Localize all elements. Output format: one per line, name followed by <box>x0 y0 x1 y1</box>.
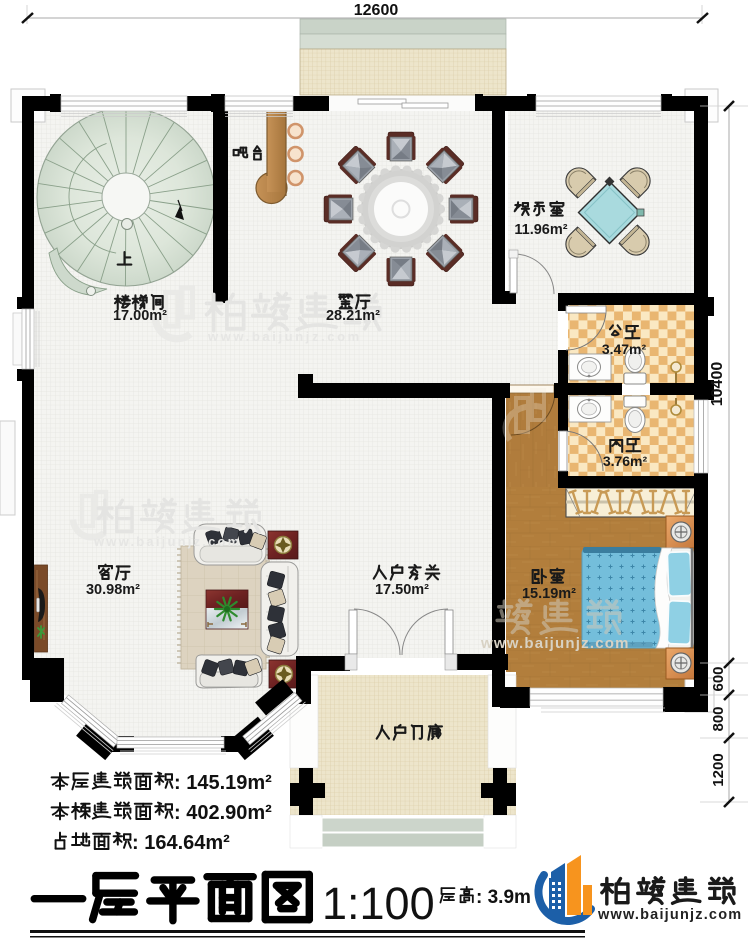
svg-text:12600: 12600 <box>354 2 399 19</box>
svg-text:www.baijunjz.com: www.baijunjz.com <box>93 534 241 549</box>
svg-text:10400: 10400 <box>709 362 726 407</box>
svg-text:28.21m²: 28.21m² <box>326 308 380 324</box>
svg-text:: 402.90m²: : 402.90m² <box>174 802 272 824</box>
svg-text:17.50m²: 17.50m² <box>375 582 429 598</box>
svg-text:800: 800 <box>710 706 727 731</box>
svg-text:11.96m²: 11.96m² <box>514 222 567 238</box>
svg-text:17.00m²: 17.00m² <box>113 308 167 324</box>
svg-text:: 145.19m²: : 145.19m² <box>174 772 272 794</box>
svg-text:3.76m²: 3.76m² <box>603 453 648 469</box>
svg-text:3.47m²: 3.47m² <box>602 341 647 357</box>
svg-text:www.baijunjz.com: www.baijunjz.com <box>207 329 362 344</box>
svg-text:30.98m²: 30.98m² <box>86 582 140 598</box>
svg-text:: 3.9m: : 3.9m <box>476 887 531 908</box>
svg-text:www.baijunjz.com: www.baijunjz.com <box>480 635 630 652</box>
svg-text:600: 600 <box>710 666 727 691</box>
svg-text:: 164.64m²: : 164.64m² <box>132 832 230 854</box>
svg-text:1200: 1200 <box>710 753 727 786</box>
svg-text:www.baijunjz.com: www.baijunjz.com <box>597 907 742 923</box>
svg-text:15.19m²: 15.19m² <box>522 586 576 602</box>
svg-text:1:100: 1:100 <box>322 878 435 929</box>
